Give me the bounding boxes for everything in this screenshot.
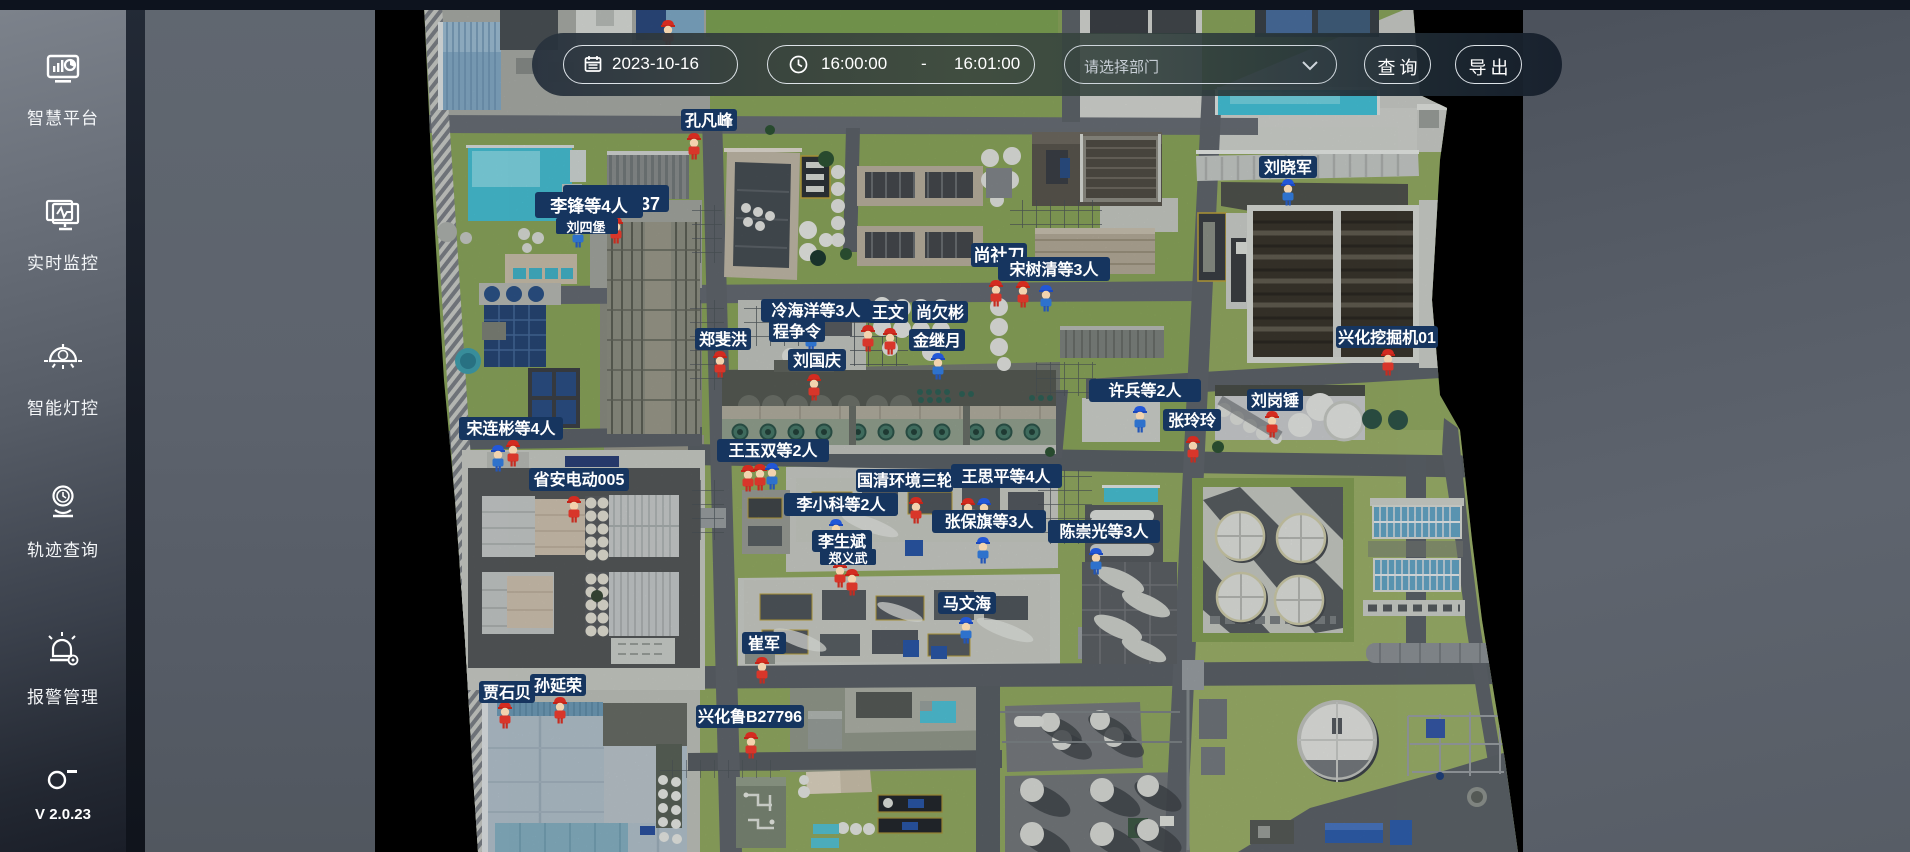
svg-text:冷海洋等3人: 冷海洋等3人	[772, 301, 862, 320]
svg-text:马文海: 马文海	[943, 594, 991, 613]
svg-text:李小科等2人: 李小科等2人	[796, 495, 887, 514]
svg-text:尚欠彬: 尚欠彬	[916, 303, 964, 322]
svg-text:孔凡峰: 孔凡峰	[685, 111, 734, 130]
svg-text:国清环境三轮: 国清环境三轮	[857, 471, 953, 490]
svg-text:金继月: 金继月	[912, 331, 961, 350]
svg-text:崔军: 崔军	[748, 634, 780, 653]
svg-text:张保旗等3人: 张保旗等3人	[945, 512, 1035, 531]
svg-text:李锋等4人: 李锋等4人	[550, 196, 628, 216]
svg-text:王玉双等2人: 王玉双等2人	[729, 441, 819, 460]
svg-text:刘岗锤: 刘岗锤	[1251, 391, 1299, 410]
svg-text:程争令: 程争令	[773, 322, 822, 341]
svg-text:王文: 王文	[872, 303, 905, 322]
svg-text:孙延荣: 孙延荣	[534, 676, 582, 695]
svg-text:许兵等2人: 许兵等2人	[1109, 381, 1183, 400]
svg-text:贾石贝: 贾石贝	[483, 684, 531, 702]
svg-text:兴化鲁B27796: 兴化鲁B27796	[698, 707, 802, 726]
svg-text:刘国庆: 刘国庆	[793, 351, 841, 370]
svg-text:刘四堡: 刘四堡	[566, 220, 605, 235]
svg-text:郑斐洪: 郑斐洪	[699, 330, 747, 349]
svg-text:宋树清等3人: 宋树清等3人	[1009, 260, 1100, 279]
svg-text:宋连彬等4人: 宋连彬等4人	[466, 419, 557, 438]
svg-text:郑义武: 郑义武	[828, 551, 867, 566]
svg-text:省安电动005: 省安电动005	[533, 470, 625, 489]
svg-text:刘晓军: 刘晓军	[1264, 158, 1312, 177]
svg-text:兴化挖掘机01: 兴化挖掘机01	[1338, 328, 1436, 347]
svg-text:张玲玲: 张玲玲	[1168, 411, 1217, 430]
svg-text:王思平等4人: 王思平等4人	[962, 467, 1052, 486]
svg-text:李生斌: 李生斌	[817, 532, 866, 551]
svg-text:陈崇光等3人: 陈崇光等3人	[1060, 522, 1150, 541]
